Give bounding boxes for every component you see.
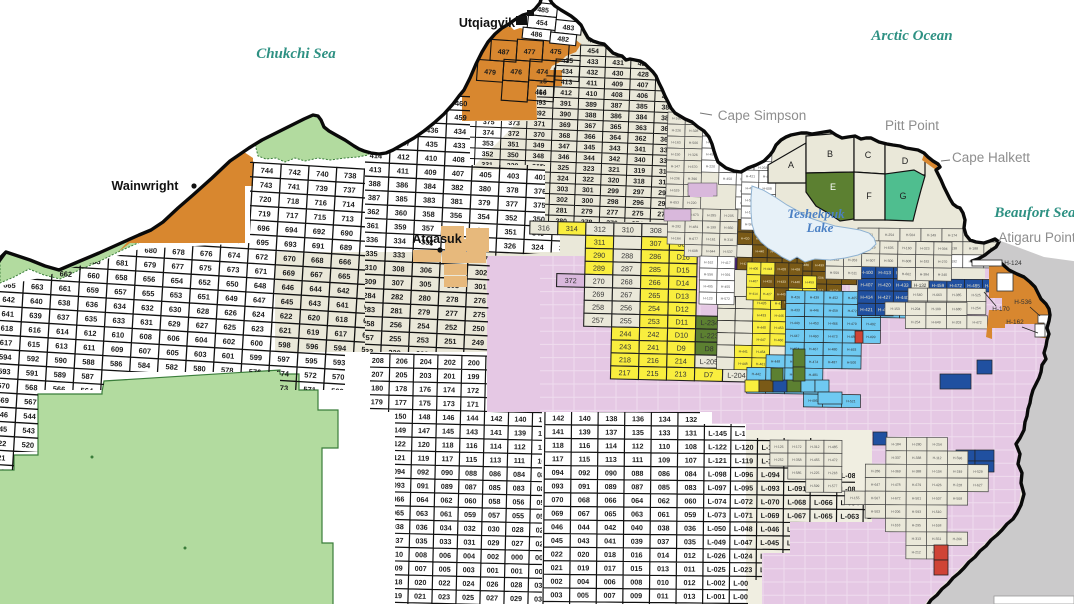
svg-text:596: 596: [306, 342, 319, 352]
svg-text:250: 250: [472, 324, 485, 334]
svg-text:108: 108: [685, 442, 697, 451]
svg-text:462: 462: [427, 98, 440, 108]
svg-text:H-286: H-286: [871, 469, 880, 473]
svg-text:044: 044: [578, 523, 590, 532]
svg-text:064: 064: [416, 495, 428, 504]
svg-text:402: 402: [687, 95, 699, 102]
svg-text:145: 145: [442, 427, 454, 436]
svg-text:708: 708: [91, 213, 104, 223]
svg-text:256: 256: [620, 303, 632, 312]
svg-text:H-637: H-637: [741, 141, 750, 145]
svg-text:694: 694: [285, 225, 299, 235]
svg-text:388: 388: [368, 179, 381, 189]
svg-text:690: 690: [340, 228, 353, 238]
svg-text:281: 281: [556, 207, 568, 214]
svg-text:370: 370: [533, 132, 545, 139]
svg-text:H-328: H-328: [689, 129, 698, 133]
svg-text:258: 258: [592, 303, 604, 312]
svg-text:755: 755: [93, 170, 106, 180]
svg-text:203: 203: [419, 371, 431, 380]
svg-text:H-487: H-487: [828, 360, 837, 364]
svg-text:608: 608: [139, 332, 152, 342]
svg-text:036: 036: [416, 523, 428, 532]
svg-text:287: 287: [621, 264, 633, 273]
svg-text:322: 322: [582, 176, 594, 183]
svg-text:473: 473: [639, 18, 651, 25]
svg-text:041: 041: [604, 536, 616, 545]
svg-text:628: 628: [196, 306, 209, 316]
svg-text:H-537: H-537: [723, 250, 732, 254]
svg-text:714: 714: [342, 200, 356, 210]
svg-text:039: 039: [631, 537, 643, 546]
svg-text:632: 632: [141, 303, 154, 313]
svg-text:254: 254: [648, 304, 660, 313]
svg-text:117: 117: [552, 454, 564, 463]
svg-text:090: 090: [441, 468, 453, 477]
svg-text:611: 611: [83, 343, 96, 353]
svg-text:451: 451: [638, 39, 650, 46]
svg-text:325: 325: [557, 165, 569, 172]
svg-text:633: 633: [112, 316, 125, 326]
svg-text:433: 433: [453, 141, 466, 151]
svg-text:399: 399: [738, 86, 750, 93]
svg-text:088: 088: [465, 469, 477, 478]
svg-text:H-446: H-446: [791, 280, 800, 284]
svg-text:249: 249: [472, 338, 485, 348]
svg-text:H-349: H-349: [759, 130, 768, 134]
svg-text:454: 454: [535, 20, 547, 28]
svg-text:H-188: H-188: [969, 247, 978, 251]
svg-text:679: 679: [143, 260, 156, 270]
svg-text:671: 671: [254, 266, 267, 276]
svg-text:H-427: H-427: [878, 295, 891, 300]
svg-text:308: 308: [392, 264, 405, 274]
svg-text:363: 363: [635, 125, 647, 132]
svg-text:070: 070: [551, 495, 563, 504]
svg-text:593: 593: [0, 367, 11, 377]
svg-text:H-460: H-460: [809, 334, 818, 338]
svg-text:090: 090: [605, 468, 617, 477]
svg-text:H-447: H-447: [790, 334, 799, 338]
svg-text:487: 487: [497, 49, 509, 57]
svg-text:678: 678: [172, 247, 185, 257]
svg-text:H-240: H-240: [938, 273, 947, 277]
svg-text:601: 601: [222, 351, 235, 361]
svg-text:H-572: H-572: [721, 297, 730, 301]
svg-text:H-644: H-644: [706, 249, 715, 253]
svg-text:739: 739: [315, 184, 328, 194]
svg-text:029: 029: [510, 594, 522, 603]
svg-text:435: 435: [425, 140, 438, 150]
svg-text:146: 146: [442, 413, 454, 422]
svg-text:648: 648: [254, 281, 267, 291]
svg-text:279: 279: [418, 307, 431, 317]
svg-text:381: 381: [687, 105, 699, 112]
svg-text:028: 028: [510, 580, 522, 589]
svg-text:H-459: H-459: [829, 309, 838, 313]
svg-text:059: 059: [684, 510, 696, 519]
svg-text:657: 657: [114, 287, 127, 297]
svg-text:486: 486: [530, 31, 542, 39]
svg-text:449: 449: [664, 40, 676, 47]
svg-text:H-406: H-406: [707, 128, 716, 132]
svg-text:643: 643: [308, 299, 321, 309]
svg-text:H-433: H-433: [777, 280, 786, 284]
svg-text:311: 311: [594, 238, 606, 247]
svg-text:253: 253: [416, 335, 429, 345]
svg-text:H-648: H-648: [969, 234, 978, 238]
svg-text:303: 303: [557, 186, 569, 193]
svg-text:H-499: H-499: [815, 263, 824, 267]
svg-text:005: 005: [439, 565, 451, 574]
svg-text:H-500: H-500: [847, 361, 856, 365]
svg-text:428: 428: [637, 71, 649, 78]
svg-text:310: 310: [622, 225, 634, 234]
svg-text:H-155: H-155: [850, 496, 859, 500]
svg-text:140: 140: [579, 414, 591, 423]
svg-text:L-093: L-093: [761, 484, 780, 493]
svg-text:084: 084: [513, 470, 525, 479]
svg-text:241: 241: [647, 343, 659, 352]
svg-text:405: 405: [479, 170, 492, 180]
svg-text:695: 695: [256, 238, 269, 248]
svg-text:410: 410: [586, 91, 598, 98]
svg-text:018: 018: [604, 550, 616, 559]
svg-text:623: 623: [251, 324, 264, 334]
svg-text:251: 251: [444, 337, 457, 347]
svg-text:083: 083: [513, 483, 525, 492]
svg-text:H-608: H-608: [902, 259, 911, 263]
svg-text:115: 115: [466, 455, 478, 464]
svg-text:286: 286: [649, 252, 661, 261]
svg-text:485: 485: [537, 7, 549, 15]
svg-text:H-670: H-670: [688, 165, 697, 169]
svg-text:358: 358: [422, 209, 435, 219]
svg-text:H-511: H-511: [848, 271, 857, 275]
svg-text:380: 380: [479, 184, 492, 194]
svg-text:058: 058: [488, 497, 500, 506]
svg-text:641: 641: [1, 309, 14, 319]
svg-text:640: 640: [30, 296, 43, 306]
svg-text:644: 644: [309, 284, 323, 294]
svg-text:676: 676: [200, 249, 213, 259]
svg-text:277: 277: [606, 209, 618, 216]
svg-text:133: 133: [658, 428, 670, 437]
svg-text:H-163: H-163: [891, 523, 900, 527]
svg-text:L-234: L-234: [700, 318, 719, 327]
svg-text:752: 752: [149, 159, 162, 169]
svg-text:715: 715: [313, 212, 326, 222]
svg-text:H-448: H-448: [771, 360, 780, 364]
svg-text:H-284: H-284: [742, 129, 751, 133]
svg-text:268: 268: [621, 277, 633, 286]
svg-text:482: 482: [557, 36, 569, 44]
svg-text:369: 369: [559, 122, 571, 129]
svg-text:H-460: H-460: [774, 338, 783, 342]
svg-text:442: 442: [460, 65, 472, 72]
svg-text:324: 324: [557, 175, 569, 182]
svg-text:139: 139: [579, 427, 591, 436]
svg-text:454: 454: [587, 48, 599, 55]
svg-text:H-280: H-280: [912, 442, 921, 446]
svg-text:639: 639: [29, 311, 42, 321]
svg-text:686: 686: [61, 241, 74, 251]
svg-text:084: 084: [685, 469, 697, 478]
svg-text:H-421: H-421: [860, 307, 873, 312]
svg-text:584: 584: [137, 360, 151, 370]
svg-text:057: 057: [488, 511, 500, 520]
svg-text:737: 737: [343, 185, 356, 195]
svg-text:618: 618: [335, 315, 348, 325]
svg-text:H-220: H-220: [687, 201, 696, 205]
svg-text:645: 645: [280, 297, 293, 307]
svg-text:202: 202: [444, 358, 456, 367]
svg-text:L-094: L-094: [761, 470, 780, 479]
svg-text:744: 744: [260, 166, 274, 176]
svg-text:L-091: L-091: [787, 484, 806, 493]
svg-text:307: 307: [649, 239, 661, 248]
svg-text:H-455: H-455: [810, 458, 819, 462]
svg-text:141: 141: [490, 428, 502, 437]
svg-text:438: 438: [398, 124, 411, 134]
svg-text:592: 592: [26, 354, 39, 364]
svg-text:H-266: H-266: [953, 537, 962, 541]
svg-text:603: 603: [194, 349, 207, 359]
svg-text:279: 279: [581, 208, 593, 215]
svg-text:361: 361: [366, 221, 379, 231]
svg-text:H-672: H-672: [891, 496, 900, 500]
svg-text:407: 407: [637, 82, 649, 89]
svg-text:420: 420: [739, 75, 751, 82]
svg-text:570: 570: [0, 381, 10, 391]
svg-text:383: 383: [423, 195, 436, 205]
svg-text:D11: D11: [675, 317, 688, 326]
svg-text:300: 300: [581, 198, 593, 205]
svg-text:609: 609: [111, 344, 124, 354]
svg-text:012: 012: [683, 578, 695, 587]
svg-text:L-046: L-046: [760, 524, 779, 533]
svg-text:378: 378: [506, 185, 519, 195]
svg-text:063: 063: [416, 509, 428, 518]
svg-text:475: 475: [614, 17, 626, 24]
svg-text:267: 267: [620, 290, 632, 299]
svg-text:L-068: L-068: [787, 498, 806, 507]
svg-text:021: 021: [551, 563, 563, 572]
svg-text:H-503: H-503: [871, 510, 880, 514]
svg-text:621: 621: [279, 326, 292, 336]
svg-text:L-073: L-073: [707, 510, 726, 519]
svg-text:L-023: L-023: [733, 565, 752, 574]
svg-text:L-119: L-119: [735, 456, 753, 465]
svg-text:045: 045: [551, 536, 563, 545]
svg-text:707: 707: [90, 228, 103, 238]
svg-text:352: 352: [505, 213, 518, 223]
svg-text:Beaufort Sea: Beaufort Sea: [993, 205, 1074, 221]
svg-text:360: 360: [395, 208, 408, 218]
svg-text:693: 693: [284, 239, 297, 249]
svg-text:257: 257: [592, 316, 604, 325]
svg-text:477: 477: [524, 49, 536, 57]
svg-text:H-507: H-507: [866, 259, 875, 263]
svg-text:H-112: H-112: [933, 456, 942, 460]
svg-text:244: 244: [619, 329, 631, 338]
svg-text:447: 447: [689, 41, 701, 48]
svg-text:464: 464: [740, 32, 752, 39]
svg-text:023: 023: [438, 592, 450, 601]
svg-text:453: 453: [613, 38, 625, 45]
svg-text:669: 669: [282, 268, 295, 278]
svg-text:135: 135: [632, 428, 644, 437]
svg-text:689: 689: [339, 243, 352, 253]
svg-text:035: 035: [684, 537, 696, 546]
svg-text:H-236: H-236: [670, 176, 679, 180]
svg-text:598: 598: [278, 340, 291, 350]
svg-text:373: 373: [508, 120, 520, 127]
svg-text:476: 476: [510, 69, 522, 77]
svg-text:138: 138: [605, 414, 617, 423]
svg-text:346: 346: [558, 154, 570, 161]
svg-text:649: 649: [225, 294, 238, 304]
svg-text:545: 545: [0, 424, 7, 434]
svg-text:243: 243: [619, 342, 631, 351]
svg-text:443: 443: [740, 43, 752, 50]
svg-text:092: 092: [417, 467, 429, 476]
svg-text:630: 630: [169, 305, 182, 315]
svg-text:H-433: H-433: [757, 313, 766, 317]
svg-text:738: 738: [9, 180, 22, 190]
svg-text:431: 431: [612, 60, 624, 67]
svg-text:422: 422: [713, 74, 725, 81]
svg-text:H-172: H-172: [792, 445, 801, 449]
svg-text:Chukchi Sea: Chukchi Sea: [256, 46, 336, 62]
svg-text:003: 003: [463, 565, 475, 574]
svg-text:616: 616: [28, 325, 41, 335]
svg-text:567: 567: [24, 397, 37, 407]
svg-text:H-268: H-268: [758, 166, 767, 170]
svg-text:275: 275: [473, 310, 486, 320]
svg-text:307: 307: [391, 278, 404, 288]
svg-text:113: 113: [605, 455, 617, 464]
svg-text:172: 172: [467, 386, 479, 395]
svg-text:H-510: H-510: [932, 510, 941, 514]
svg-text:265: 265: [648, 291, 660, 300]
svg-text:H-577: H-577: [828, 484, 837, 488]
svg-text:086: 086: [489, 469, 501, 478]
svg-text:586: 586: [110, 359, 123, 369]
svg-text:634: 634: [113, 301, 127, 311]
svg-text:466: 466: [715, 32, 727, 39]
svg-text:612: 612: [84, 328, 97, 338]
svg-text:H-168: H-168: [932, 523, 941, 527]
svg-text:297: 297: [633, 189, 645, 196]
svg-text:406: 406: [636, 93, 648, 100]
svg-text:H-162: H-162: [704, 260, 713, 264]
svg-text:446: 446: [689, 52, 701, 59]
svg-text:688: 688: [33, 239, 46, 249]
svg-text:409: 409: [424, 167, 437, 177]
svg-text:282: 282: [391, 292, 404, 302]
svg-text:H-529: H-529: [670, 188, 679, 192]
svg-text:743: 743: [260, 180, 273, 190]
svg-text:H-663: H-663: [933, 293, 942, 297]
svg-text:407: 407: [452, 169, 465, 179]
svg-text:756: 756: [94, 156, 107, 166]
svg-text:175: 175: [419, 398, 431, 407]
svg-text:627: 627: [196, 321, 209, 331]
svg-text:D14: D14: [676, 278, 689, 287]
svg-text:411: 411: [586, 80, 598, 87]
svg-text:656: 656: [143, 274, 156, 284]
svg-text:H-254: H-254: [885, 233, 894, 237]
svg-text:732: 732: [92, 185, 105, 195]
svg-text:647: 647: [253, 295, 266, 305]
svg-text:Arctic Ocean: Arctic Ocean: [870, 28, 952, 44]
svg-text:174: 174: [443, 385, 455, 394]
svg-text:276: 276: [473, 296, 486, 306]
svg-text:H-326: H-326: [688, 153, 697, 157]
svg-text:121: 121: [393, 453, 405, 462]
svg-text:087: 087: [465, 482, 477, 491]
svg-text:H-472: H-472: [972, 321, 981, 325]
svg-text:134: 134: [659, 415, 671, 424]
svg-text:H-593: H-593: [912, 510, 921, 514]
svg-text:653: 653: [169, 290, 182, 300]
svg-text:326: 326: [504, 241, 517, 251]
svg-text:H-472: H-472: [848, 309, 857, 313]
svg-text:001: 001: [487, 566, 499, 575]
svg-text:302: 302: [475, 268, 488, 278]
svg-text:L-026: L-026: [707, 551, 726, 560]
svg-text:401: 401: [713, 85, 725, 92]
svg-text:312: 312: [594, 225, 606, 234]
svg-text:661: 661: [58, 284, 71, 294]
svg-text:467: 467: [715, 21, 727, 28]
svg-text:362: 362: [367, 207, 380, 217]
svg-text:760: 760: [38, 153, 51, 163]
svg-text:H-162: H-162: [1006, 319, 1024, 326]
svg-text:L-072: L-072: [734, 497, 753, 506]
svg-text:270: 270: [593, 277, 605, 286]
svg-text:H-396: H-396: [688, 177, 697, 181]
svg-text:173: 173: [443, 399, 455, 408]
svg-text:253: 253: [648, 317, 660, 326]
svg-text:H-447: H-447: [756, 338, 765, 342]
svg-text:H-161: H-161: [706, 237, 715, 241]
svg-text:301: 301: [582, 187, 594, 194]
svg-text:H-479: H-479: [847, 322, 856, 326]
svg-text:391: 391: [560, 101, 572, 108]
svg-text:148: 148: [418, 412, 430, 421]
svg-text:001: 001: [511, 566, 523, 575]
svg-text:208: 208: [372, 356, 384, 365]
svg-text:344: 344: [583, 155, 595, 162]
svg-text:255: 255: [389, 334, 402, 344]
svg-text:367: 367: [584, 123, 596, 130]
svg-text:089: 089: [441, 482, 453, 491]
svg-text:H-504: H-504: [906, 233, 915, 237]
svg-text:H-599: H-599: [810, 484, 819, 488]
svg-text:H-551: H-551: [932, 537, 941, 541]
svg-text:H-203: H-203: [952, 320, 961, 324]
svg-text:323: 323: [583, 166, 595, 173]
svg-text:H-653: H-653: [670, 200, 679, 204]
svg-text:423: 423: [714, 64, 726, 71]
svg-text:624: 624: [252, 310, 266, 320]
svg-text:L-001: L-001: [707, 592, 726, 601]
svg-text:038: 038: [657, 523, 669, 532]
svg-text:569: 569: [0, 395, 9, 405]
svg-text:025: 025: [462, 593, 474, 602]
